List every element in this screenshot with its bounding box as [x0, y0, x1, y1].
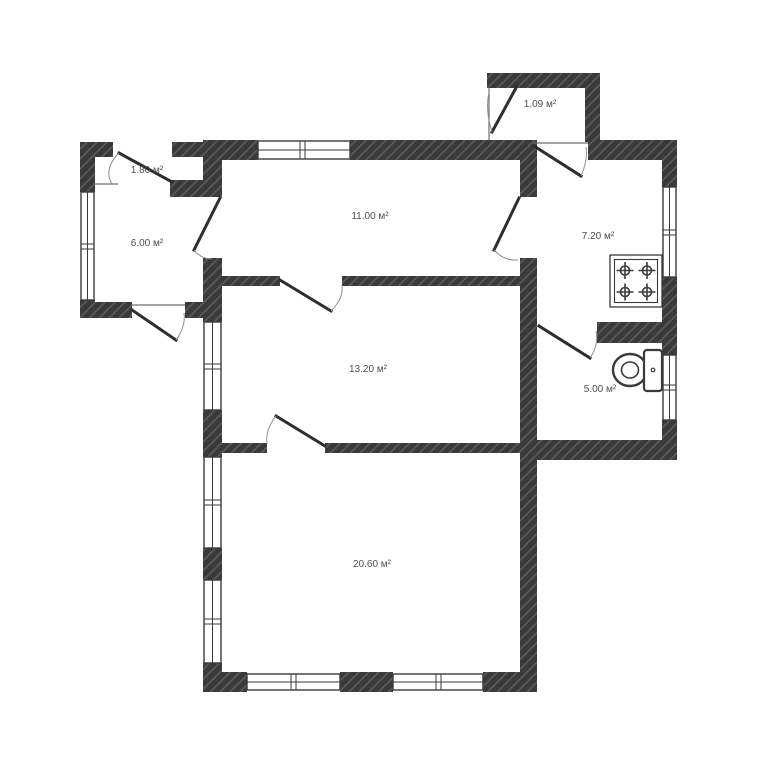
wall	[585, 73, 600, 142]
wall	[597, 322, 677, 343]
wall	[172, 142, 207, 157]
window	[204, 322, 221, 410]
wall	[222, 443, 267, 453]
window	[204, 580, 221, 663]
door-bathroom	[539, 326, 597, 358]
wall	[350, 140, 533, 160]
wall	[325, 443, 520, 453]
wall	[203, 663, 222, 692]
wall	[520, 258, 537, 692]
wall	[222, 276, 280, 286]
door-middle-to-bottom-room	[267, 416, 325, 446]
window	[247, 674, 340, 690]
floor-plan-drawing: 1.09 м² 1.80 м² 6.00 м² 11.00 м² 7.20 м²…	[0, 0, 768, 768]
wall	[487, 73, 600, 88]
window	[393, 674, 483, 690]
windows	[81, 141, 676, 690]
door-top-room-to-veranda	[194, 198, 220, 259]
toilet-icon	[613, 350, 662, 391]
wall	[340, 672, 393, 692]
wall	[483, 672, 537, 692]
floor-plan: 1.09 м² 1.80 м² 6.00 м² 11.00 м² 7.20 м²…	[0, 0, 768, 768]
wall	[170, 180, 207, 197]
door-porch-entry	[488, 86, 517, 132]
room-label-porch: 1.09 м²	[524, 99, 557, 110]
wall	[342, 276, 520, 286]
wall	[203, 410, 222, 457]
room-label-veranda: 6.00 м²	[131, 238, 164, 249]
room-label-room-top: 11.00 м²	[351, 211, 389, 222]
wall	[662, 277, 677, 355]
wall	[80, 142, 95, 192]
walls	[80, 73, 677, 692]
room-label-room-bottom: 20.60 м²	[353, 559, 392, 570]
window	[204, 457, 221, 548]
door-kitchen-to-top-room	[494, 198, 519, 260]
wall	[185, 302, 207, 318]
window	[663, 187, 676, 277]
wall	[203, 548, 222, 580]
wall	[80, 302, 132, 318]
door-veranda-exit	[132, 310, 184, 340]
thin-partitions	[95, 88, 588, 305]
room-label-kitchen: 7.20 м²	[582, 231, 615, 242]
door-porch-to-kitchen	[534, 146, 586, 176]
room-label-hall: 1.80 м²	[131, 165, 164, 176]
room-label-room-middle: 13.20 м²	[349, 364, 388, 375]
wall	[520, 140, 537, 197]
door-top-room-to-middle-room	[280, 280, 342, 311]
wall	[520, 440, 677, 460]
wall	[662, 140, 677, 187]
window	[258, 141, 350, 159]
room-label-bathroom: 5.00 м²	[584, 384, 617, 395]
window	[663, 355, 676, 420]
window	[81, 192, 94, 300]
stove-icon	[610, 255, 662, 307]
